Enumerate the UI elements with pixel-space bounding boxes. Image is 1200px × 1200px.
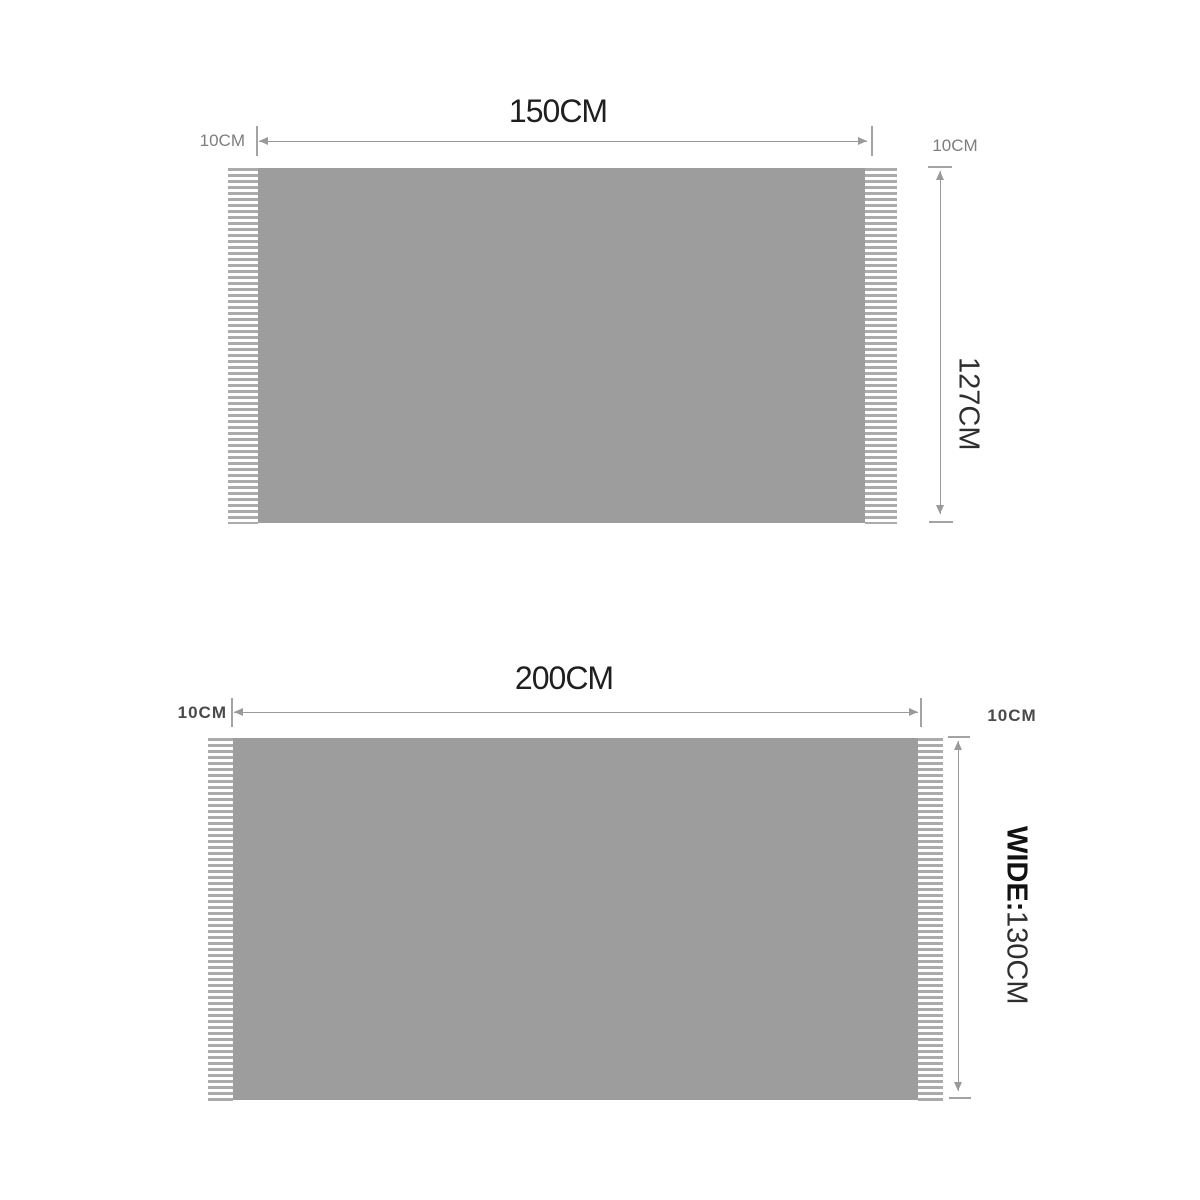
fringe-width-label-right: 10CM (930, 136, 980, 156)
product-dimension-sheet: 150CM 10CM 10CM 127CM 200CM 10CM 10CM (0, 0, 1200, 1200)
length-dimension-arrow (259, 141, 867, 142)
dimension-tick (256, 126, 258, 156)
dimension-tick (231, 698, 233, 727)
dimension-tick (928, 166, 952, 168)
height-value: 130CM (1000, 911, 1033, 1005)
height-dimension-label: 127CM (948, 324, 988, 484)
blanket-fringe-left (228, 168, 258, 524)
blanket-fringe-left (208, 738, 233, 1102)
height-dimension-arrow (940, 171, 941, 514)
blanket-fringe-right (918, 738, 943, 1102)
dimension-tick (920, 698, 922, 727)
dimension-tick (929, 521, 953, 523)
fringe-width-label-left: 10CM (180, 131, 245, 151)
blanket-fringe-right (865, 168, 897, 524)
dimension-tick (948, 736, 970, 738)
height-dimension-label: WIDE:130CM (995, 823, 1037, 1007)
length-dimension-arrow (234, 712, 918, 713)
length-dimension-label: 150CM (453, 93, 663, 130)
height-label-prefix: WIDE: (1000, 826, 1033, 911)
height-dimension-arrow (958, 741, 959, 1091)
fringe-width-label-right: 10CM (986, 706, 1038, 726)
length-dimension-label: 200CM (459, 660, 669, 697)
blanket-body (233, 738, 918, 1100)
fringe-width-label-left: 10CM (163, 703, 227, 723)
dimension-tick (871, 126, 873, 156)
dimension-tick (949, 1097, 971, 1099)
height-value: 127CM (952, 357, 985, 451)
blanket-body (258, 168, 865, 523)
